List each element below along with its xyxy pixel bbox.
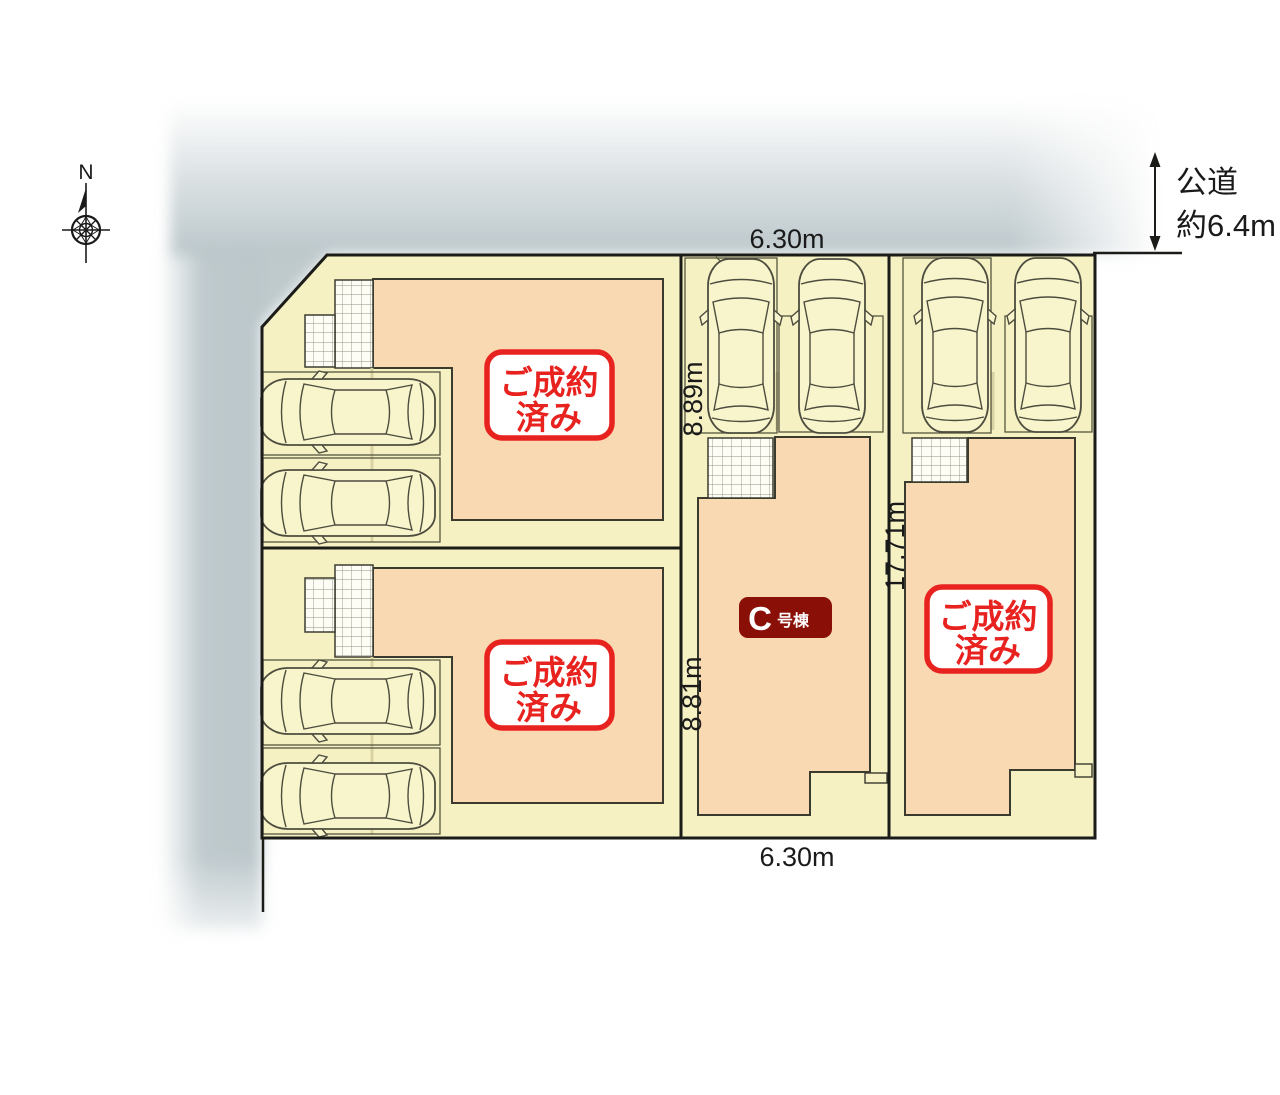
dimension-depth-lower: 8.81m	[677, 656, 707, 731]
road-name: 公道	[1176, 165, 1238, 200]
porch-hatch	[708, 438, 773, 498]
sold-badge-right: ご成約 済み	[927, 587, 1050, 671]
sold-text-line2: 済み	[516, 689, 582, 726]
north-label: N	[78, 161, 93, 184]
arrow-up-icon	[1150, 152, 1161, 167]
sold-text-line1: ご成約	[939, 598, 1038, 635]
step	[865, 773, 887, 783]
dimension-depth-full: 17.71m	[880, 501, 910, 591]
step	[1075, 764, 1092, 777]
unit-letter: C	[748, 600, 772, 637]
car-icon	[1007, 258, 1089, 432]
car-icon	[261, 371, 435, 453]
sold-text-line2: 済み	[955, 632, 1021, 669]
sold-text-line1: ご成約	[500, 364, 599, 401]
car-icon	[914, 258, 996, 432]
arrow-down-icon	[1150, 236, 1161, 251]
dimension-depth-upper: 8.89m	[678, 361, 708, 436]
compass-needle	[78, 188, 86, 213]
porch-hatch	[912, 438, 967, 482]
car-icon	[261, 462, 435, 544]
unit-suffix: 号棟	[777, 611, 810, 630]
porch-hatch	[305, 315, 335, 367]
dimension-frontage-top: 6.30m	[749, 224, 824, 254]
car-icon	[261, 755, 435, 837]
sold-text-line1: ご成約	[500, 654, 599, 691]
porch-hatch	[335, 565, 373, 657]
site-plan-page: ご成約 済み ご成約 済み ご成約 済み C 号棟 6.30m 6.30m 8.…	[0, 0, 1280, 1095]
porch-hatch	[305, 578, 335, 632]
sold-badge-bottom-left: ご成約 済み	[487, 642, 612, 728]
porch-hatch	[335, 280, 373, 368]
dimension-frontage-bottom: 6.30m	[759, 842, 834, 872]
road-width: 約6.4m	[1176, 208, 1276, 243]
car-icon	[791, 259, 873, 433]
car-icon	[700, 259, 782, 433]
north-compass: N	[62, 161, 110, 263]
site-plan-drawing: ご成約 済み ご成約 済み ご成約 済み C 号棟 6.30m 6.30m 8.…	[0, 0, 1280, 1095]
unit-c-badge: C 号棟	[739, 597, 832, 638]
sold-text-line2: 済み	[516, 399, 582, 436]
sold-badge-top-left: ご成約 済み	[487, 352, 612, 438]
road-annotation: 公道 約6.4m	[1150, 152, 1276, 251]
car-icon	[261, 660, 435, 742]
